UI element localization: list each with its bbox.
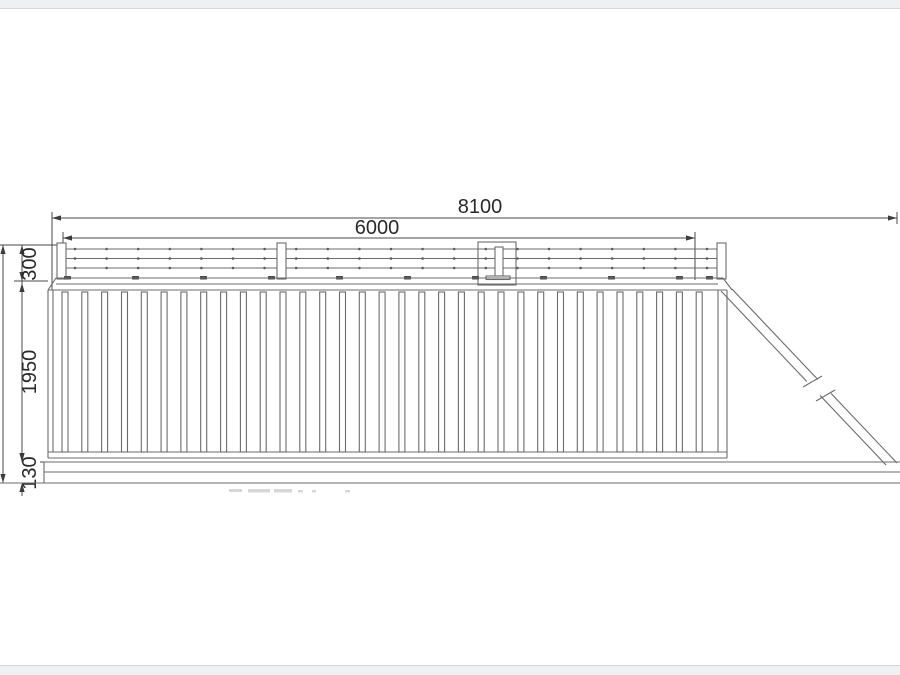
- diagonal-brace: [721, 289, 897, 465]
- brace-break-upper: [803, 376, 822, 387]
- dim-bottom-rail-height: 130: [19, 449, 41, 496]
- dim-label-inner-width: 6000: [355, 217, 400, 239]
- dim-label-top-section-height: 300: [19, 247, 41, 280]
- dim-total-width: 8100: [52, 196, 897, 290]
- wire-post-right: [717, 243, 726, 279]
- drawing-canvas: 8100 6000: [0, 0, 900, 675]
- wire-post-middle: [277, 243, 286, 279]
- bottom-rail: [0, 462, 900, 483]
- gate-technical-drawing: 8100 6000: [0, 0, 900, 675]
- dim-label-panel-height: 1950: [19, 350, 41, 395]
- vertical-slats: [62, 292, 702, 452]
- dim-label-bottom-rail-height: 130: [19, 456, 41, 489]
- dim-panel-height: 1950: [19, 281, 41, 462]
- dim-label-total-width: 8100: [458, 196, 503, 218]
- top-right-chamfer: [723, 278, 732, 290]
- faint-watermark: [229, 489, 350, 493]
- barb-dots: [74, 248, 709, 270]
- gate-panel: [48, 278, 732, 458]
- brace-break-lower: [816, 390, 835, 401]
- dim-top-section-height: 300: [19, 245, 41, 281]
- wire-post-left: [57, 243, 66, 279]
- detail-post: [495, 247, 503, 276]
- dim-overall-height: [0, 245, 5, 483]
